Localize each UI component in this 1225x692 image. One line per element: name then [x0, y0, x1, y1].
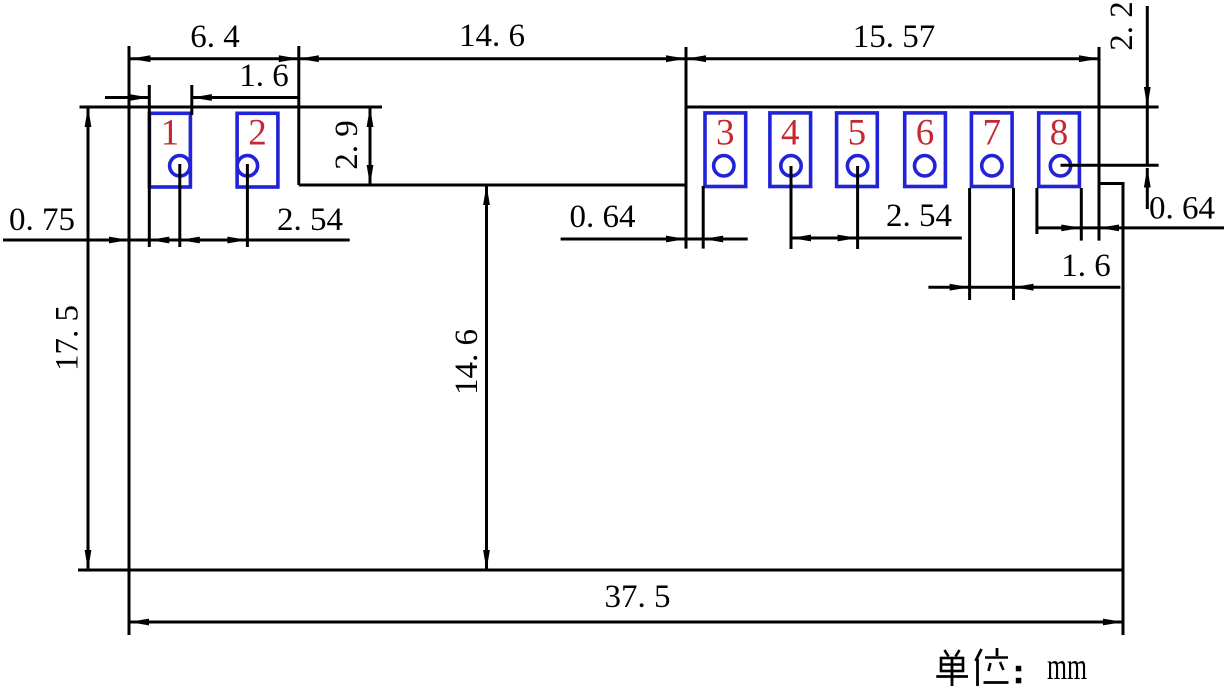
- svg-text:37. 5: 37. 5: [605, 579, 671, 615]
- svg-text:1. 6: 1. 6: [1061, 248, 1111, 284]
- svg-text:7: 7: [982, 113, 1001, 154]
- svg-text:8: 8: [1050, 113, 1069, 154]
- svg-text:1: 1: [161, 113, 180, 154]
- svg-text:2. 54: 2. 54: [886, 198, 952, 234]
- svg-text:14. 6: 14. 6: [449, 329, 485, 395]
- svg-text:4: 4: [781, 113, 800, 154]
- svg-text:mm: mm: [1047, 646, 1087, 688]
- svg-text:6: 6: [916, 113, 935, 154]
- svg-text:6. 4: 6. 4: [190, 19, 240, 55]
- svg-text:15. 57: 15. 57: [853, 19, 936, 55]
- svg-text:17. 5: 17. 5: [50, 305, 86, 371]
- svg-text:1. 6: 1. 6: [239, 58, 289, 94]
- svg-text:0. 75: 0. 75: [9, 202, 75, 238]
- svg-text:5: 5: [848, 113, 867, 154]
- svg-text:3: 3: [716, 113, 735, 154]
- svg-text:0. 64: 0. 64: [570, 199, 636, 235]
- svg-text:2. 2: 2. 2: [1104, 1, 1140, 51]
- svg-text:2: 2: [248, 113, 267, 154]
- svg-text:0. 64: 0. 64: [1149, 191, 1215, 227]
- svg-text:2. 54: 2. 54: [277, 202, 343, 238]
- svg-text:2. 9: 2. 9: [329, 120, 365, 170]
- svg-text:14. 6: 14. 6: [459, 18, 525, 54]
